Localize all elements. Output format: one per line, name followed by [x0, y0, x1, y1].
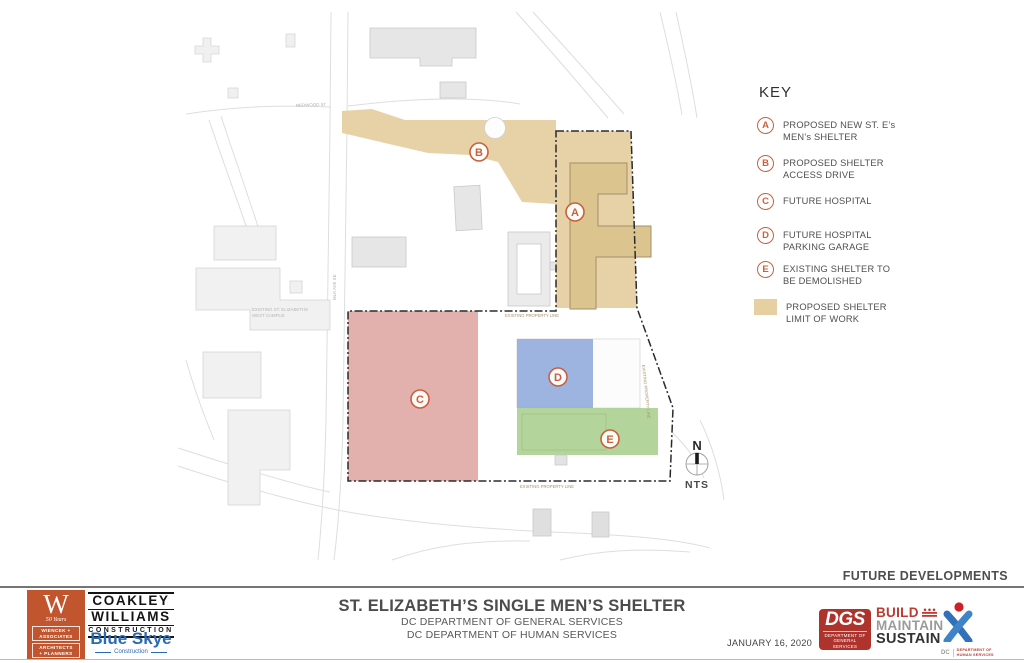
svg-text:A: A	[571, 207, 579, 219]
legend: KEY A PROPOSED NEW ST. E’sMEN’s SHELTER …	[757, 84, 992, 334]
small-structure	[555, 455, 567, 465]
marker-E: E	[601, 430, 619, 448]
property-line-label-bottom: EXISTING PROPERTY LINE	[520, 484, 574, 489]
dc-flag-icon	[922, 608, 937, 617]
dhs-figure-icon	[941, 602, 975, 642]
street-label-redwood: REDWOOD ST	[296, 102, 327, 108]
marker-B: B	[470, 143, 488, 161]
roundabout	[485, 118, 506, 139]
dept-human-services: DC DEPARTMENT OF HUMAN SERVICES	[262, 629, 762, 642]
legend-label: PROPOSED SHELTER	[783, 158, 884, 168]
existing-shelter-area	[517, 408, 658, 455]
svg-text:E: E	[606, 434, 613, 446]
dept-general-services: DC DEPARTMENT OF GENERAL SERVICES	[262, 616, 762, 629]
legend-marker-c: C	[757, 193, 774, 210]
svg-text:C: C	[416, 394, 424, 406]
marker-A: A	[566, 203, 584, 221]
sheet-section-title: FUTURE DEVELOPMENTS	[843, 569, 1008, 583]
campus-buildings	[196, 226, 330, 505]
street-label-mlk: MLK AVE SE	[332, 274, 337, 300]
property-line-label-top: EXISTING PROPERTY LINE	[505, 313, 559, 318]
plan-sheet: REDWOOD ST MLK AVE SE EXISTING ST. ELIZA…	[0, 0, 1024, 663]
legend-label: PROPOSED SHELTER	[786, 302, 887, 312]
legend-title: KEY	[759, 84, 792, 101]
marker-D: D	[549, 368, 567, 386]
legend-marker-a: A	[757, 117, 774, 134]
north-arrow: N NTS	[685, 438, 709, 491]
wiencek-w-mark: W	[27, 591, 85, 617]
sheet-bottom-divider	[0, 659, 1024, 660]
legend-marker-e: E	[757, 261, 774, 278]
campus-label-1: EXISTING ST. ELIZABETHS	[252, 307, 308, 312]
legend-marker-b: B	[757, 155, 774, 172]
legend-label: FUTURE HOSPITAL	[783, 230, 872, 240]
legend-item-a: A PROPOSED NEW ST. E’sMEN’s SHELTER	[757, 117, 895, 143]
wiencek-years: 50 Years	[27, 617, 85, 624]
legend-item-e: E EXISTING SHELTER TOBE DEMOLISHED	[757, 261, 890, 287]
sheet-title: ST. ELIZABETH’S SINGLE MEN’S SHELTER	[262, 597, 762, 616]
campus-label-2: WEST CAMPUS	[252, 313, 285, 318]
legend-item-limit-of-work: PROPOSED SHELTERLIMIT OF WORK	[757, 299, 887, 325]
footer-divider	[0, 586, 1024, 588]
wiencek-logo: W 50 Years WIENCEK +ASSOCIATES ARCHITECT…	[27, 590, 85, 659]
title-block: ST. ELIZABETH’S SINGLE MEN’S SHELTER DC …	[262, 597, 762, 641]
dgs-logo: DGS DEPARTMENT OFGENERAL SERVICES	[819, 609, 871, 650]
svg-text:D: D	[554, 372, 562, 384]
legend-label: PROPOSED NEW ST. E’s	[783, 120, 895, 130]
access-drive-area	[342, 109, 556, 204]
svg-text:B: B	[475, 147, 483, 159]
nts-label: NTS	[685, 479, 709, 491]
blue-skye-logo: Blue Skye Construction	[88, 630, 174, 656]
legend-item-b: B PROPOSED SHELTERACCESS DRIVE	[757, 155, 884, 181]
legend-item-c: C FUTURE HOSPITAL	[757, 193, 872, 210]
dhs-logo: DC DEPARTMENT OFHUMAN SERVICES	[941, 602, 1021, 657]
legend-label: FUTURE HOSPITAL	[783, 196, 872, 206]
north-label: N	[692, 438, 701, 453]
sheet-date: JANUARY 16, 2020	[726, 638, 812, 648]
legend-marker-d: D	[757, 227, 774, 244]
legend-label: EXISTING SHELTER TO	[783, 264, 890, 274]
marker-C: C	[411, 390, 429, 408]
legend-item-d: D FUTURE HOSPITALPARKING GARAGE	[757, 227, 872, 253]
limit-of-work-swatch	[754, 299, 777, 315]
build-maintain-sustain: BUILD MAINTAIN SUSTAIN	[876, 606, 946, 646]
